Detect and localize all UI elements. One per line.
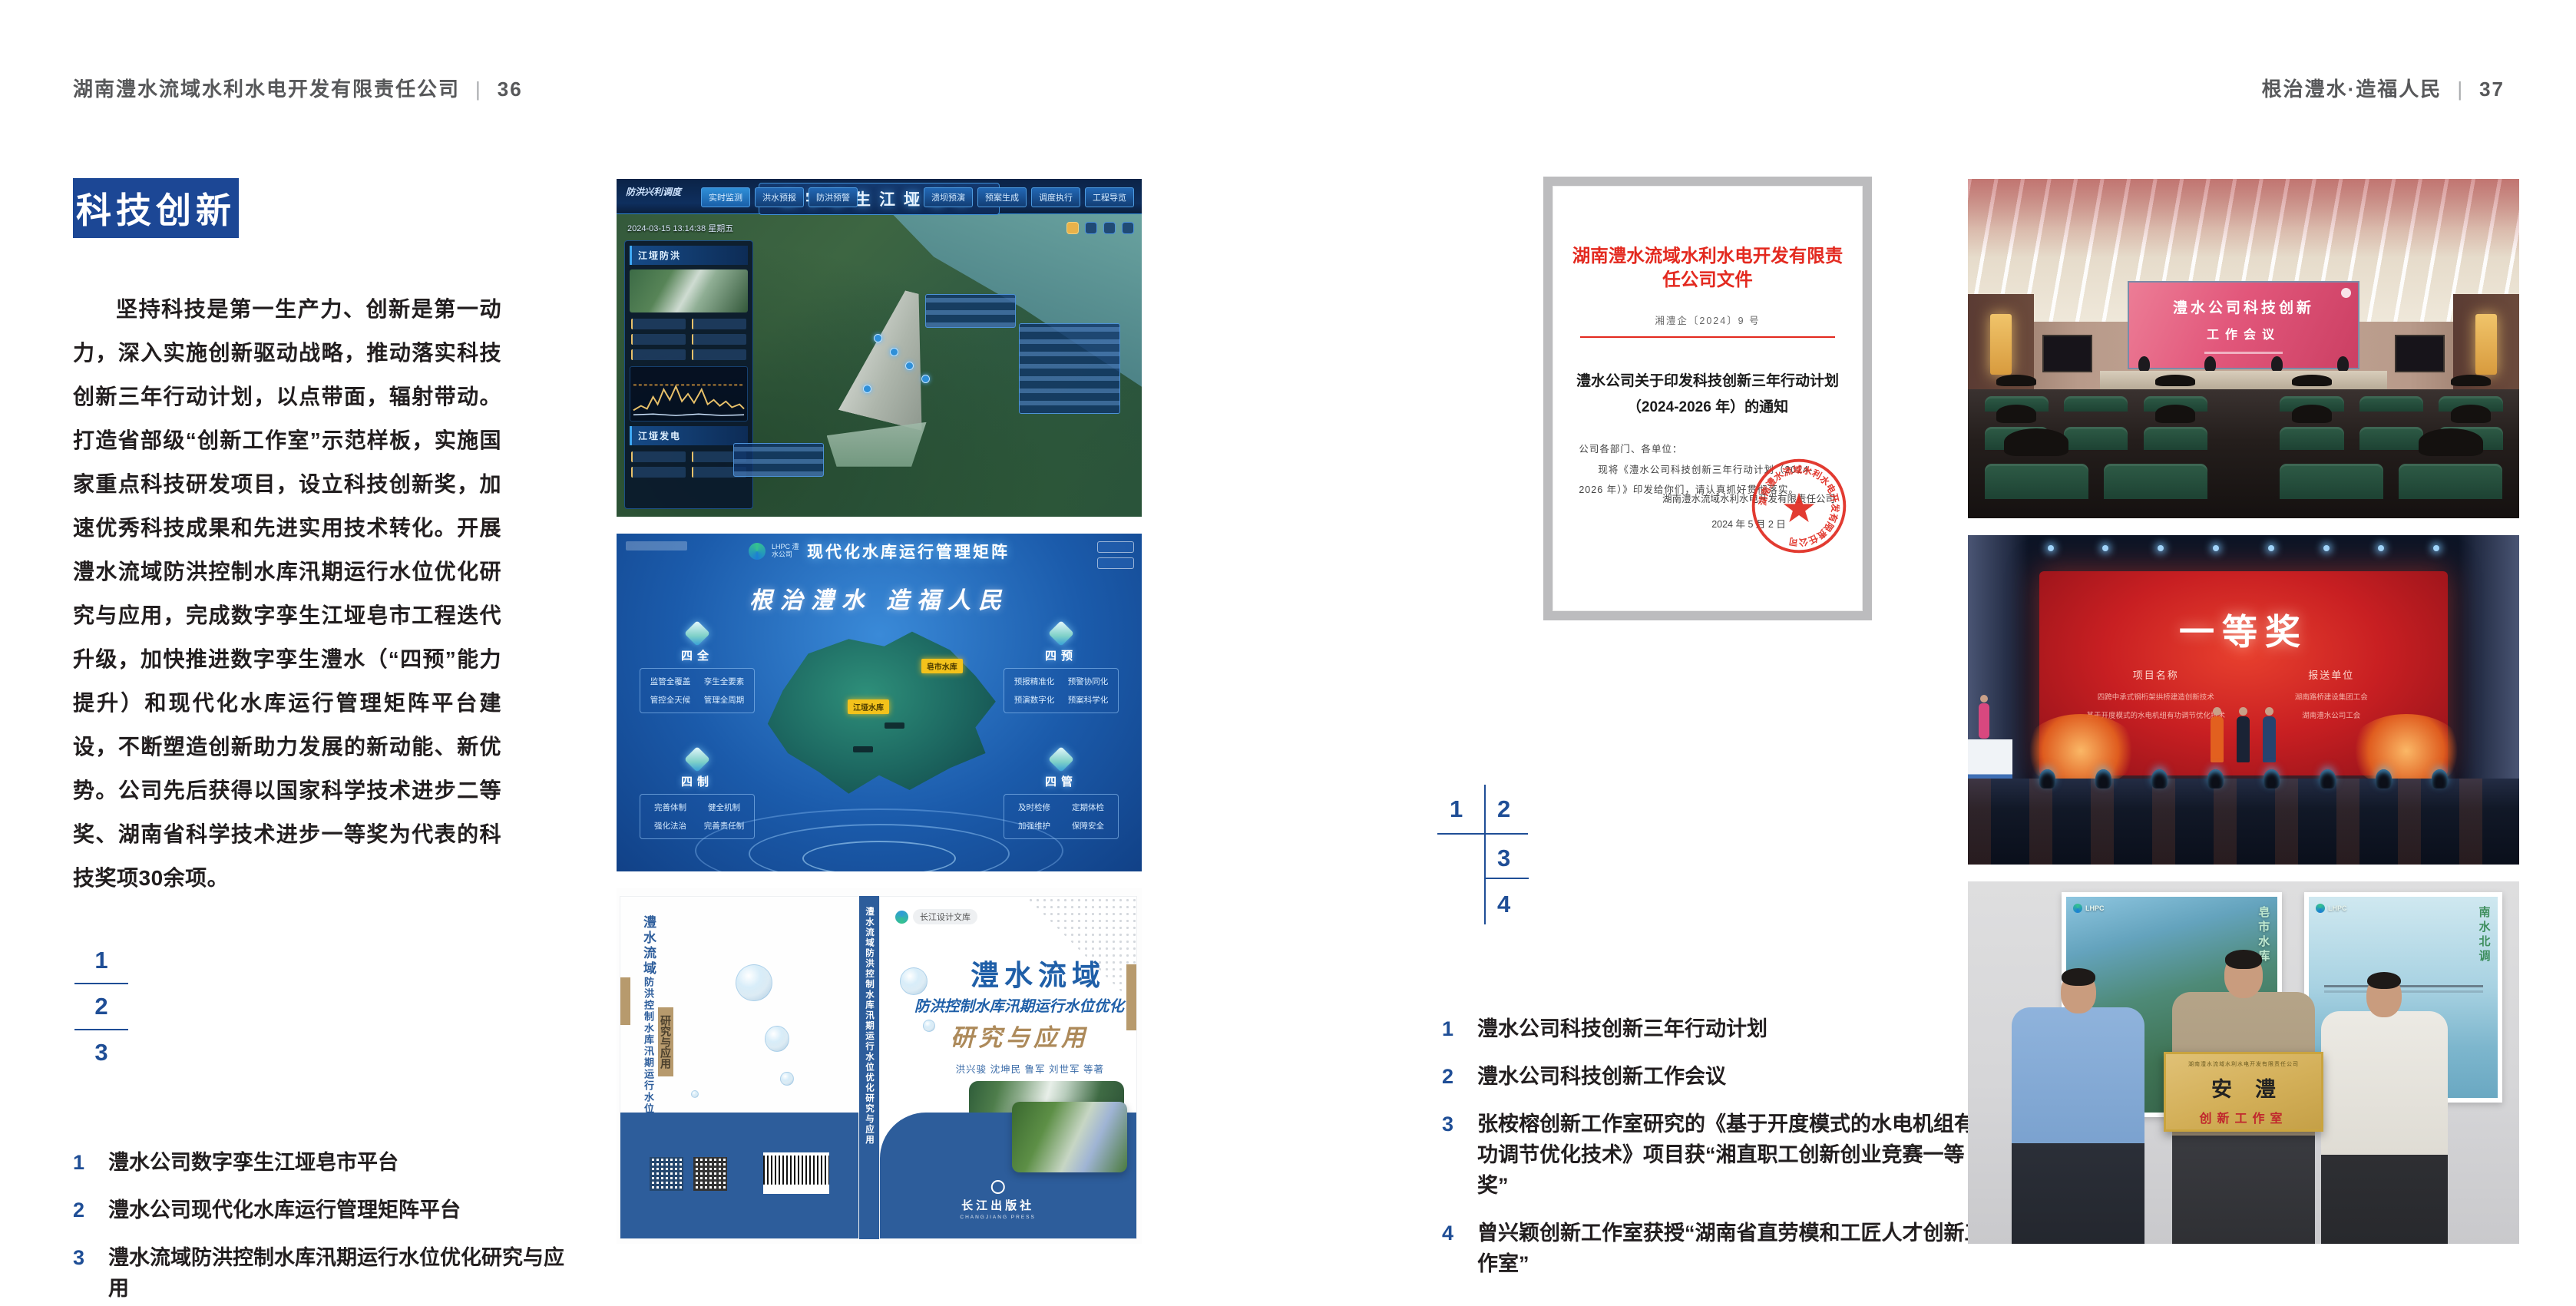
figure-official-document: 湖南澧水流域水利水电开发有限责任公司文件 湘澧企〔2024〕9 号 澧水公司关于… [1543, 177, 1872, 620]
diamond-icon [1048, 746, 1074, 772]
document-number: 湘澧企〔2024〕9 号 [1553, 312, 1863, 327]
head-table [2100, 371, 2386, 389]
award-unit: 湖南路桥建设集团工会 [2254, 691, 2409, 702]
dashboard-left-tabs: 实时监测 洪水预报 防洪预警 [701, 187, 858, 207]
water-droplet [923, 1020, 935, 1032]
wall-tv [2042, 335, 2092, 372]
caption-text: 张桉榕创新工作室研究的《基于开度模式的水电机组有功调节优化技术》项目获“湘直职工… [1477, 1109, 1989, 1201]
map-marker: 江垭水库 [848, 699, 889, 714]
caption-row: 3 张桉榕创新工作室研究的《基于开度模式的水电机组有功调节优化技术》项目获“湘直… [1442, 1109, 1989, 1201]
qr-code [693, 1157, 727, 1191]
wall-tv [2395, 335, 2445, 372]
lhpc-logo-icon [749, 543, 766, 560]
award-column-header: 报送单位 [2254, 667, 2409, 682]
dashboard-tab: 调度执行 [1031, 187, 1080, 207]
publisher-name: 长江出版社 [960, 1197, 1035, 1213]
screen-logo-icon [2341, 288, 2351, 298]
award-headline: 一等奖 [2039, 604, 2447, 655]
caption-row: 1 澧水公司科技创新三年行动计划 [1442, 1013, 1989, 1044]
caption-number: 2 [1442, 1061, 1459, 1092]
meeting-column [1968, 294, 2034, 402]
awardees [2211, 716, 2276, 762]
dashboard-tab: 洪水预报 [755, 187, 804, 207]
publisher-name-en: CHANGJIANG PRESS [960, 1215, 1035, 1220]
header-divider: | [475, 78, 482, 101]
figure-index-number: 2 [74, 992, 128, 1021]
person-head [2366, 976, 2402, 1017]
water-droplet [765, 1026, 789, 1052]
plaque-subtitle: 创新工作室 [2166, 1108, 2321, 1126]
back-cover-tan-block [620, 977, 630, 1025]
figure-index-line [1437, 833, 1528, 835]
caption-number: 1 [1442, 1013, 1459, 1044]
award-project: 四跨中承式钢桁架拱桥建造创新技术 [2078, 691, 2233, 702]
left-caption-list: 1 澧水公司数字孪生江垭皂市平台 2 澧水公司现代化水库运行管理矩阵平台 3 澧… [73, 1147, 580, 1306]
figure-workshop-plaque-photo: LHPC 皂市水库 LHPC 南水北调 湖南澧水流域水利水电开发有限责任公司 安… [1968, 881, 2519, 1244]
dashboard-right-tabs: 溃坝预演 预案生成 调度执行 工程导览 [924, 187, 1134, 207]
book-title-sub: 防洪控制水库汛期运行水位优化 [914, 994, 1124, 1016]
screen-title-line1: 澧水公司科技创新 [2173, 296, 2314, 317]
seal-star [1784, 493, 1814, 522]
left-page-number: 36 [498, 78, 523, 101]
official-seal: 湖南澧水流域水利水电开发有限责任公司 [1748, 455, 1850, 557]
lhpc-logo-icon [2316, 904, 2325, 913]
figure-meeting-photo: 澧水公司科技创新 工作会议 [1968, 179, 2519, 518]
diamond-icon [684, 746, 710, 772]
figure-award-ceremony-photo: 一等奖 项目名称 四跨中承式钢桁架拱桥建造创新技术 基于开度模式的水电机组有功调… [1968, 535, 2519, 865]
locate-icon [1103, 222, 1116, 234]
intro-paragraph: 坚持科技是第一生产力、创新是第一动力，深入实施创新驱动战略，推动落实科技创新三年… [73, 287, 501, 900]
figure-index-number: 4 [1497, 891, 1510, 918]
left-figure-index: 1 2 3 [74, 946, 128, 1067]
figure-index-line [1484, 785, 1486, 924]
isbn-barcode [763, 1152, 829, 1194]
stage-floor [1968, 779, 2519, 865]
right-header-title: 根治澧水·造福人民 [2262, 78, 2442, 101]
audience-row [1968, 396, 2519, 412]
audience-row [1968, 464, 2519, 499]
caption-row: 3 澧水流域防洪控制水库汛期运行水位优化研究与应用 [73, 1242, 580, 1304]
plaque-header: 湖南澧水流域水利水电开发有限责任公司 [2166, 1060, 2321, 1068]
front-cover-blue-band: 长江出版社 CHANGJIANG PRESS [880, 1113, 1136, 1238]
dashboard-datetime: 2024-03-15 13:14:38 星期五 [627, 222, 733, 234]
layers-icon [1085, 222, 1097, 234]
caption-row: 2 澧水公司现代化水库运行管理矩阵平台 [73, 1195, 580, 1225]
caption-number: 2 [73, 1195, 90, 1225]
figure-index-line [1484, 878, 1529, 879]
person-head [2224, 954, 2263, 998]
ceiling-spotlights [2023, 545, 2464, 551]
caption-row: 4 曾兴颖创新工作室获授“湖南省直劳模和工匠人才创新工作室” [1442, 1218, 1989, 1279]
person-figure [2012, 972, 2144, 1244]
book-front-cover: 长江设计文库 澧水流域 防洪控制水库汛期运行水位优化 研究与应用 洪兴骏 沈坤民… [879, 896, 1137, 1239]
map-data-callout [1019, 323, 1120, 414]
map-data-callout [925, 294, 1016, 328]
lhpc-logo-icon [2073, 904, 2082, 913]
award-column-header: 项目名称 [2078, 667, 2233, 682]
lhpc-logo: LHPC [2316, 904, 2347, 913]
map-minor-marker [885, 722, 904, 729]
matrix-header: LHPC 澧水公司 现代化水库运行管理矩阵 [617, 540, 1142, 563]
meeting-column [2453, 294, 2519, 402]
figure-index-number: 2 [1497, 795, 1510, 823]
right-caption-list: 1 澧水公司科技创新三年行动计划 2 澧水公司科技创新工作会议 3 张桉榕创新工… [1442, 1013, 1989, 1296]
lhpc-logo: LHPC [2073, 904, 2105, 913]
book-spine: 澧水流域防洪控制水库汛期运行水位优化研究与应用 [859, 896, 879, 1239]
front-cover-tan-block [1126, 964, 1136, 1030]
water-droplet [900, 967, 928, 995]
document-masthead: 湖南澧水流域水利水电开发有限责任公司文件 [1553, 244, 1863, 291]
brochure-spread: 湖南澧水流域水利水电开发有限责任公司|36 根治澧水·造福人民|37 科技创新 … [0, 0, 2576, 1306]
person-head [2061, 972, 2096, 1013]
back-cover-blue-band [620, 1113, 858, 1238]
dashboard-tab: 工程导览 [1085, 187, 1134, 207]
dashboard-tab: 防洪预警 [809, 187, 858, 207]
figure-digital-twin-dashboard: 数字孪生江垭皂市 防洪兴利调度 实时监测 洪水预报 防洪预警 溃坝预演 预案生成… [617, 179, 1142, 517]
person-figure [2321, 976, 2448, 1244]
right-page-number: 37 [2479, 78, 2505, 101]
map-marker: 皂市水库 [921, 659, 963, 673]
globe-icon [895, 911, 908, 924]
caption-row: 1 澧水公司数字孪生江垭皂市平台 [73, 1147, 580, 1178]
map-data-callout [733, 443, 824, 477]
innovation-workshop-plaque: 湖南澧水流域水利水电开发有限责任公司 安澧 创新工作室 [2164, 1052, 2323, 1132]
wall-lamp [1990, 314, 2012, 375]
dashboard-module-label: 防洪兴利调度 [626, 187, 696, 197]
document-subject: 澧水公司关于印发科技创新三年行动计划 （2024-2026 年）的通知 [1553, 369, 1863, 421]
series-badge: 长江设计文库 [895, 909, 977, 924]
left-page-header: 湖南澧水流域水利水电开发有限责任公司|36 [73, 74, 523, 102]
user-icon [1122, 222, 1134, 234]
water-droplet [736, 964, 772, 1001]
qr-code [650, 1157, 683, 1191]
water-droplet [691, 1090, 699, 1098]
diamond-icon [1048, 620, 1074, 646]
figure-index-divider [74, 1029, 128, 1030]
panel-flood-title: 江垭防洪 [630, 246, 748, 265]
caption-text: 澧水公司数字孪生江垭皂市平台 [108, 1147, 398, 1178]
book-title-tail: 研究与应用 [951, 1018, 1089, 1053]
figure-index-divider [74, 983, 128, 984]
screen-title-line2: 工作会议 [2207, 324, 2280, 342]
caption-text: 澧水公司科技创新工作会议 [1477, 1061, 1726, 1092]
book-title-region: 澧水流域 [971, 952, 1106, 994]
powerhouse-photo [1012, 1102, 1127, 1172]
diamond-icon [684, 620, 710, 646]
book-authors: 洪兴骏 沈坤民 鲁军 刘世军 等著 [956, 1061, 1104, 1076]
book-back-cover: 澧水流域防洪控制水库汛期运行水位优化研究与应用 [620, 896, 859, 1239]
publisher-block: 长江出版社 CHANGJIANG PRESS [960, 1180, 1035, 1220]
figure-index-number: 1 [1450, 795, 1463, 823]
panel-level-chart [630, 366, 748, 422]
caption-number: 3 [73, 1242, 90, 1304]
head-table-people [2111, 349, 2376, 372]
plaque-title: 安澧 [2166, 1073, 2321, 1103]
figure-index-number: 3 [74, 1038, 128, 1067]
right-page-header: 根治澧水·造福人民|37 [2262, 74, 2505, 102]
figure-book-cover: 澧水流域防洪控制水库汛期运行水位优化研究与应用 澧水流域防洪控制水库汛期运行水位… [617, 888, 1142, 1244]
caption-number: 1 [73, 1147, 90, 1178]
left-header-title: 湖南澧水流域水利水电开发有限责任公司 [73, 78, 460, 101]
dashboard-tab: 实时监测 [701, 187, 750, 207]
caption-text: 澧水公司科技创新三年行动计划 [1477, 1013, 1767, 1044]
header-divider: | [2457, 78, 2464, 101]
map-minor-marker [853, 746, 873, 752]
publisher-logo-icon [991, 1180, 1005, 1194]
matrix-slogan: 根治澧水 造福人民 [617, 581, 1142, 615]
figure-index-number: 1 [74, 946, 128, 975]
document-red-rule [1580, 336, 1834, 338]
water-droplet [780, 1072, 794, 1086]
stage-light-fixtures [2039, 769, 2447, 789]
panel-power-stats [630, 450, 748, 479]
figure-index-number: 3 [1497, 845, 1510, 872]
host-figure [1979, 703, 1989, 739]
panel-flood-stats [630, 317, 748, 362]
panel-dam-thumbnail [630, 269, 748, 312]
poster-vertical-text: 南水北调 [2475, 906, 2492, 964]
wall-lamp [2475, 314, 2497, 375]
caption-text: 澧水公司现代化水库运行管理矩阵平台 [108, 1195, 461, 1225]
dashboard-tab: 预案生成 [977, 187, 1027, 207]
caption-row: 2 澧水公司科技创新工作会议 [1442, 1061, 1989, 1092]
caption-number: 3 [1442, 1109, 1459, 1201]
panel-power-title: 江垭发电 [630, 426, 748, 445]
matrix-title: 现代化水库运行管理矩阵 [807, 540, 1010, 563]
matrix-card-siyu: 四预 预报精准化预警协同化 预演数字化预案科学化 [1004, 624, 1119, 713]
caption-number: 4 [1442, 1218, 1459, 1279]
caption-text: 曾兴颖创新工作室获授“湖南省直劳模和工匠人才创新工作室” [1477, 1218, 1989, 1279]
alert-icon [1066, 222, 1079, 234]
matrix-logo-text: LHPC 澧水公司 [772, 544, 801, 559]
caption-text: 澧水流域防洪控制水库汛期运行水位优化研究与应用 [108, 1242, 580, 1304]
document-page: 湖南澧水流域水利水电开发有限责任公司文件 湘澧企〔2024〕9 号 澧水公司关于… [1553, 186, 1863, 611]
dashboard-tab: 溃坝预演 [924, 187, 973, 207]
figure-matrix-platform: LHPC 澧水公司 现代化水库运行管理矩阵 根治澧水 造福人民 皂市水库 江垭水… [617, 534, 1142, 871]
dashboard-toolbar-icons [1066, 222, 1134, 234]
matrix-card-siquan: 四全 监管全覆盖孪生全要素 管控全天候管理全周期 [640, 624, 755, 713]
section-title-badge: 科技创新 [73, 178, 239, 238]
back-cover-vertical-title: 澧水流域防洪控制水库汛期运行水位优化研究与应用 [639, 915, 673, 1146]
